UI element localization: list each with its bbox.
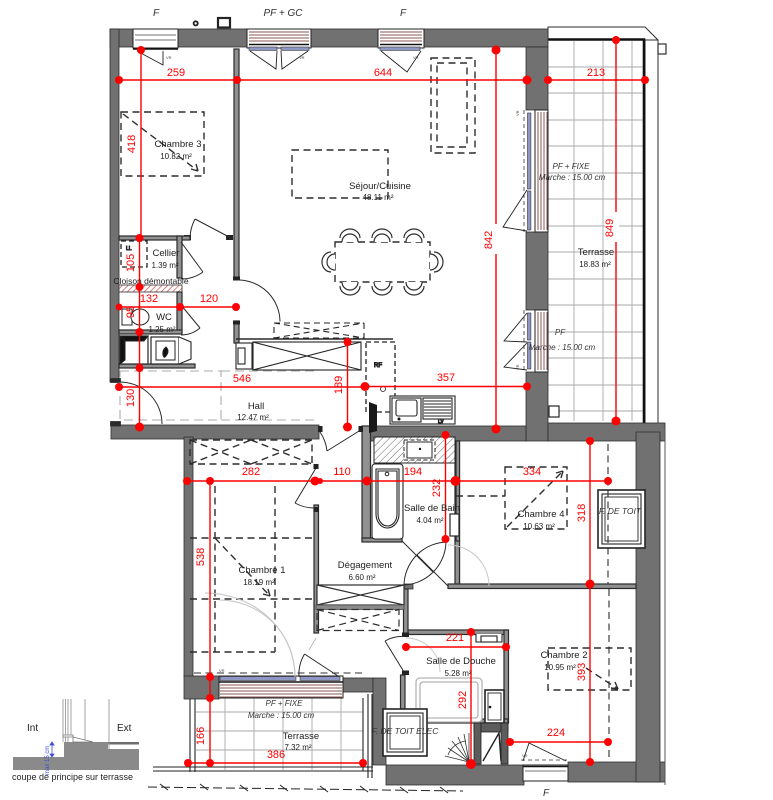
svg-text:120: 120 — [200, 293, 218, 305]
svg-text:F. DE TOIT ELEC: F. DE TOIT ELEC — [372, 726, 440, 736]
svg-text:48.11 m²: 48.11 m² — [363, 193, 394, 202]
svg-text:Cellier: Cellier — [153, 248, 180, 259]
svg-text:6.60 m²: 6.60 m² — [348, 573, 375, 582]
svg-text:221: 221 — [446, 632, 464, 644]
svg-text:Salle de Douche: Salle de Douche — [426, 656, 496, 667]
svg-text:546: 546 — [233, 373, 251, 385]
svg-text:842: 842 — [483, 231, 495, 249]
svg-text:Hall: Hall — [248, 401, 264, 412]
svg-text:VR: VR — [299, 55, 305, 60]
svg-text:Salle de Bain: Salle de Bain — [404, 503, 460, 514]
svg-text:Chambre 1: Chambre 1 — [239, 565, 286, 576]
svg-text:110: 110 — [333, 466, 351, 478]
svg-text:Terrasse: Terrasse — [283, 731, 319, 742]
svg-text:357: 357 — [437, 372, 455, 384]
svg-text:1.39 m²: 1.39 m² — [151, 261, 178, 270]
svg-text:Chambre 2: Chambre 2 — [541, 650, 588, 661]
svg-text:12.47 m²: 12.47 m² — [237, 413, 269, 422]
svg-text:166: 166 — [195, 727, 207, 745]
svg-text:Chambre 4: Chambre 4 — [518, 509, 565, 520]
svg-text:F: F — [543, 788, 550, 799]
svg-text:Marche : 15.00 cm: Marche : 15.00 cm — [248, 711, 315, 720]
svg-text:5.28 m²: 5.28 m² — [444, 669, 471, 678]
svg-text:105: 105 — [125, 254, 137, 272]
svg-text:Cloison démontable: Cloison démontable — [113, 276, 188, 286]
svg-text:max 15 cm: max 15 cm — [45, 746, 51, 775]
svg-text:849: 849 — [604, 219, 616, 237]
svg-text:132: 132 — [140, 293, 158, 305]
svg-text:Marche : 15.00 cm: Marche : 15.00 cm — [529, 343, 596, 352]
svg-text:Chambre 3: Chambre 3 — [155, 139, 202, 150]
svg-text:189: 189 — [333, 376, 345, 394]
svg-text:224: 224 — [547, 727, 565, 739]
svg-text:213: 213 — [587, 67, 605, 79]
svg-text:4.04 m²: 4.04 m² — [416, 516, 443, 525]
svg-text:Dégagement: Dégagement — [338, 560, 393, 571]
svg-text:PF: PF — [555, 328, 566, 337]
svg-text:F: F — [153, 8, 160, 19]
svg-text:Marche : 15.00 cm: Marche : 15.00 cm — [539, 173, 606, 182]
svg-text:VR: VR — [515, 110, 520, 116]
svg-text:95: 95 — [125, 306, 137, 318]
svg-text:644: 644 — [374, 67, 392, 79]
svg-text:10.63 m²: 10.63 m² — [523, 522, 555, 531]
svg-text:Ext: Ext — [117, 723, 132, 734]
svg-text:232: 232 — [431, 479, 443, 497]
svg-text:PF + FIXE: PF + FIXE — [266, 699, 304, 708]
svg-text:18.19 m²: 18.19 m² — [243, 578, 275, 587]
svg-text:259: 259 — [167, 67, 185, 79]
svg-text:538: 538 — [195, 548, 207, 566]
svg-text:282: 282 — [242, 466, 260, 478]
svg-text:Int: Int — [27, 723, 38, 734]
svg-text:WC: WC — [156, 312, 172, 323]
svg-text:RF: RF — [374, 363, 382, 369]
svg-text:418: 418 — [126, 135, 138, 153]
svg-text:Séjour/Cuisine: Séjour/Cuisine — [349, 181, 411, 192]
svg-text:386: 386 — [267, 749, 285, 761]
svg-text:334: 334 — [523, 466, 541, 478]
svg-text:VR: VR — [515, 364, 520, 370]
svg-text:Terrasse: Terrasse — [578, 247, 614, 258]
svg-text:F: F — [400, 8, 407, 19]
svg-text:10.82 m²: 10.82 m² — [160, 152, 192, 161]
svg-text:194: 194 — [404, 466, 422, 478]
svg-text:PF + GC: PF + GC — [264, 8, 304, 19]
svg-text:18.83 m²: 18.83 m² — [579, 260, 611, 269]
svg-text:F. DE TOIT: F. DE TOIT — [599, 506, 642, 516]
svg-text:VR: VR — [219, 668, 225, 673]
svg-text:VR: VR — [522, 753, 528, 758]
svg-text:LL: LL — [126, 246, 132, 252]
svg-text:318: 318 — [576, 504, 588, 522]
svg-text:10.95 m²: 10.95 m² — [544, 663, 576, 672]
svg-text:130: 130 — [125, 389, 137, 407]
svg-text:coupe de principe sur terrasse: coupe de principe sur terrasse — [12, 772, 133, 782]
svg-text:LV: LV — [438, 419, 444, 425]
svg-text:1.25 m²: 1.25 m² — [148, 325, 175, 334]
svg-text:393: 393 — [576, 663, 588, 681]
svg-text:PF + FIXE: PF + FIXE — [553, 162, 591, 171]
svg-text:7.32 m²: 7.32 m² — [284, 743, 311, 752]
svg-text:VR: VR — [166, 55, 172, 60]
svg-text:292: 292 — [457, 691, 469, 709]
svg-text:VR: VR — [413, 55, 419, 60]
